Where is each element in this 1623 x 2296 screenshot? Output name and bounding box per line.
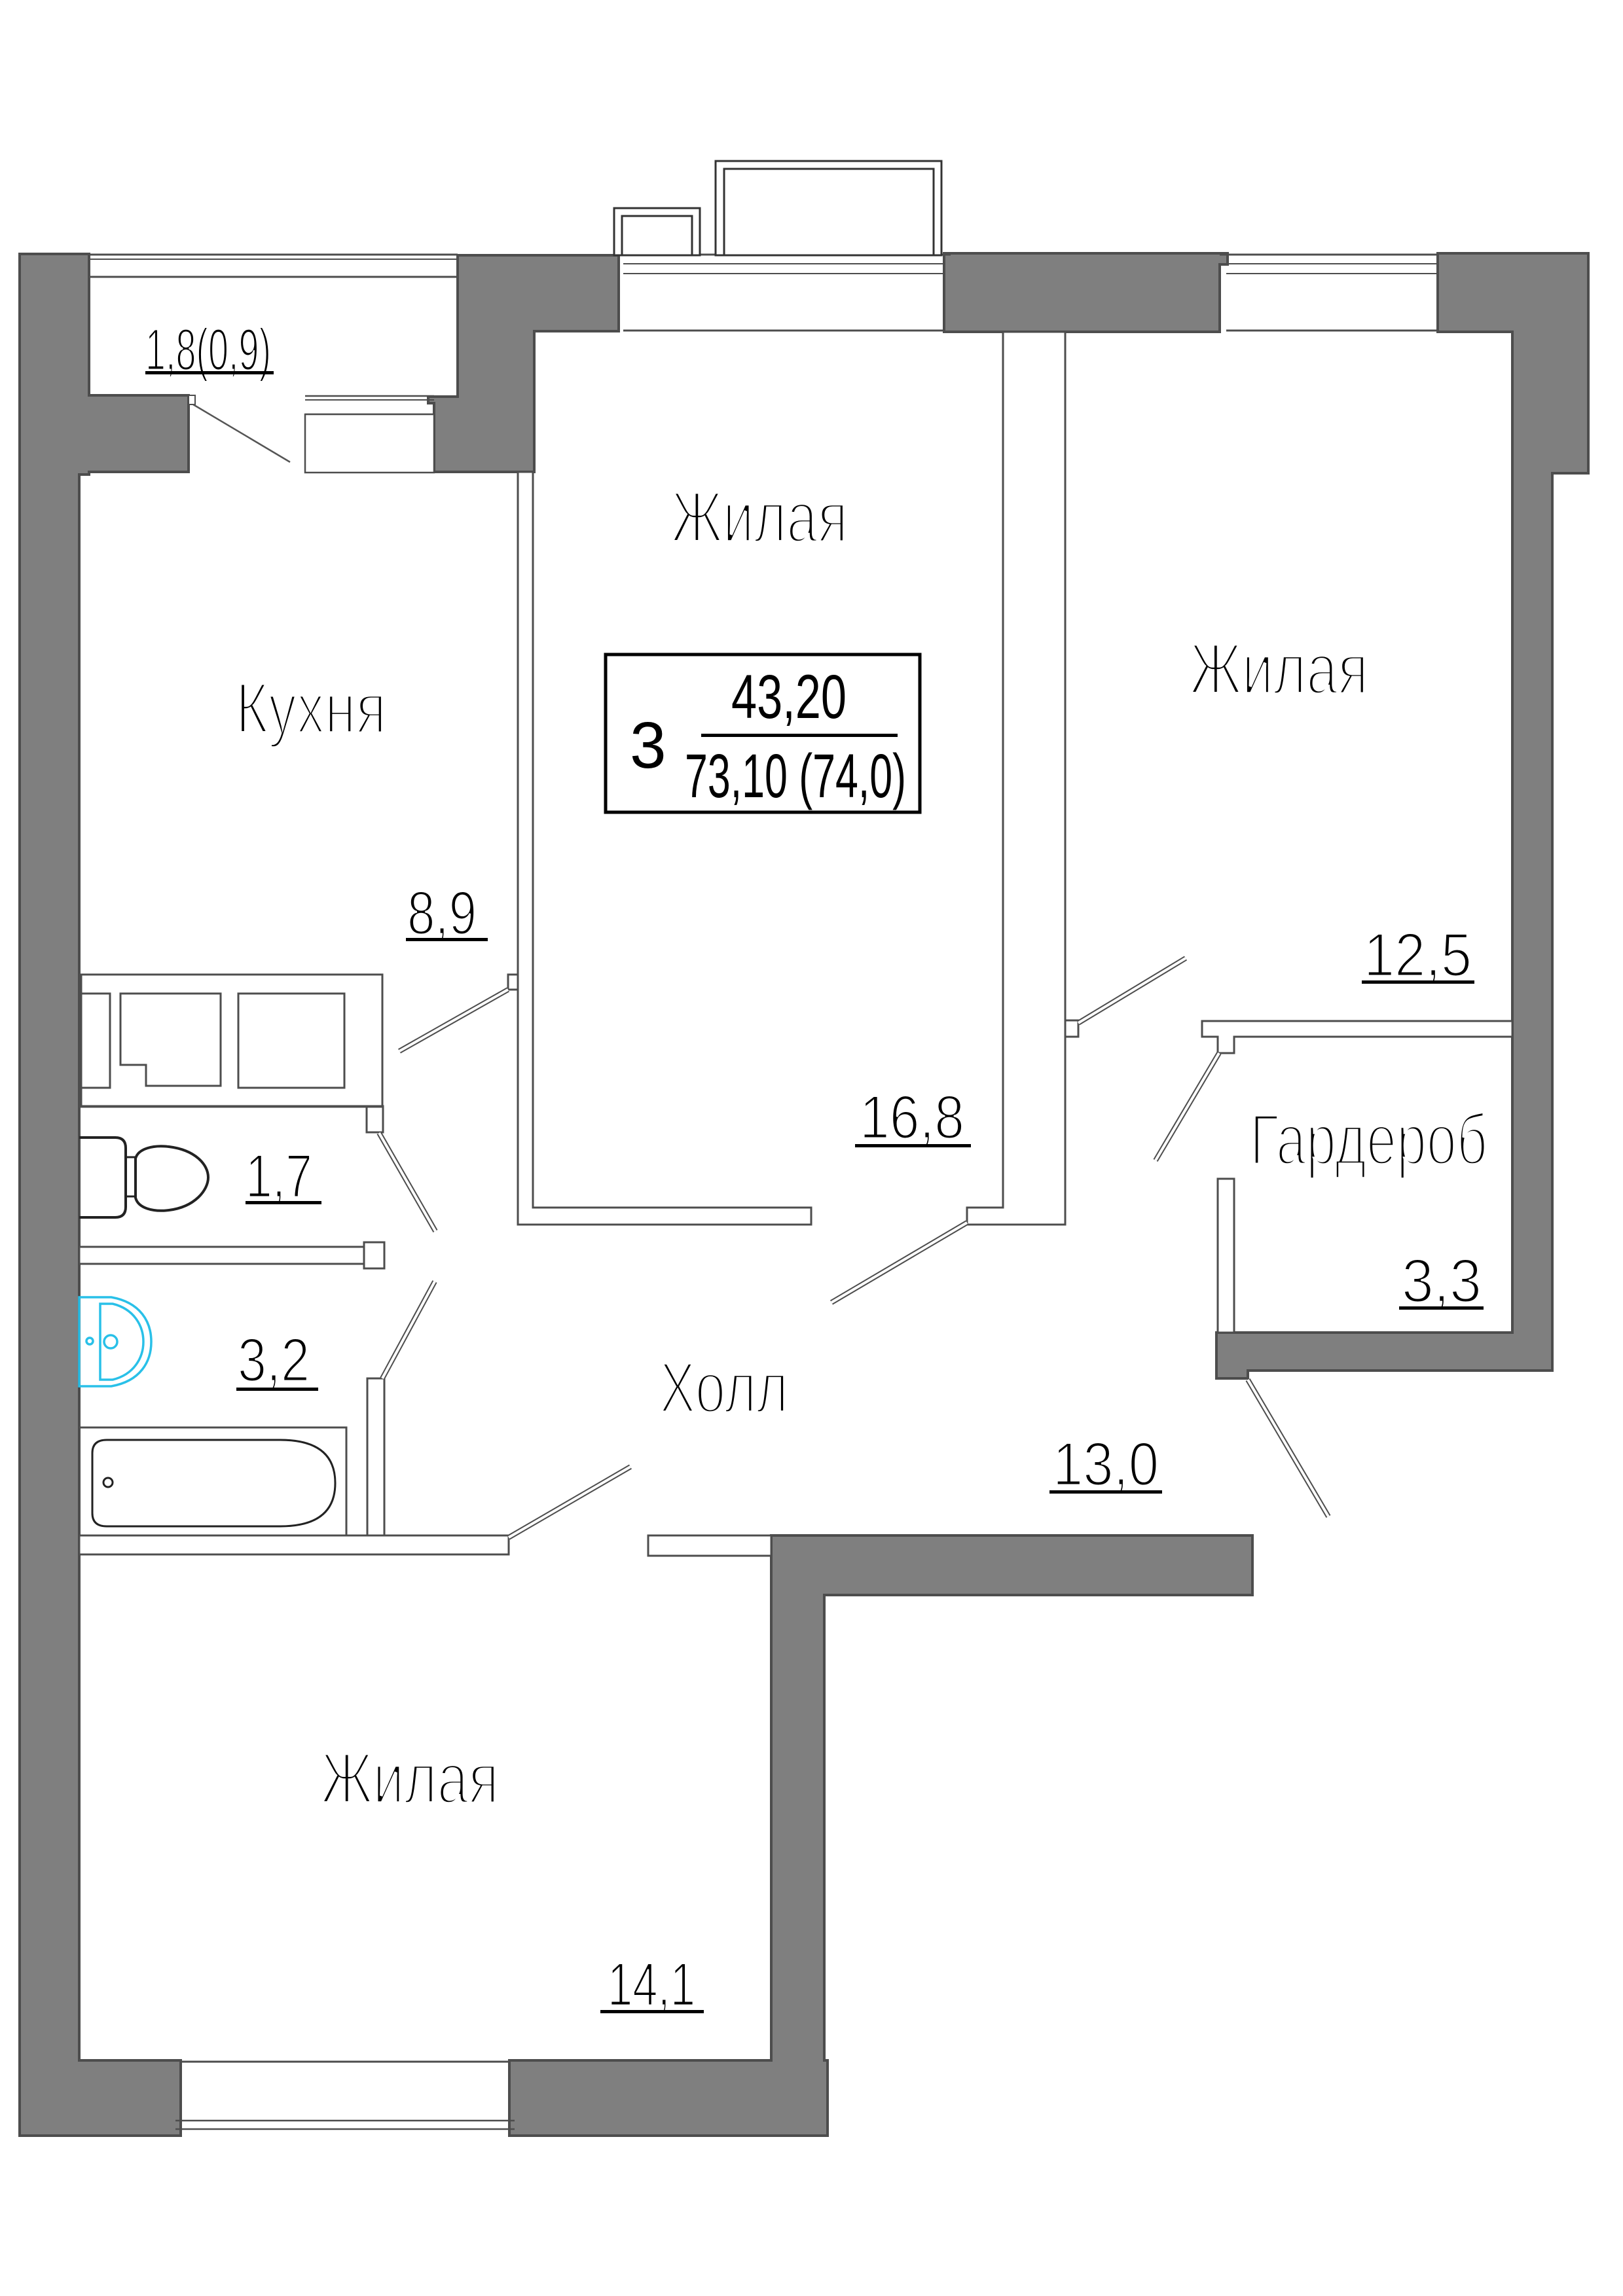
svg-text:Холл: Холл bbox=[659, 1348, 788, 1428]
svg-text:43,20: 43,20 bbox=[731, 662, 847, 732]
svg-text:Жилая: Жилая bbox=[1190, 629, 1368, 709]
svg-text:Жилая: Жилая bbox=[321, 1738, 499, 1819]
svg-text:Жилая: Жилая bbox=[671, 477, 848, 558]
svg-text:73,10 (74,0): 73,10 (74,0) bbox=[685, 742, 906, 811]
svg-text:16,8: 16,8 bbox=[860, 1083, 964, 1151]
svg-text:3: 3 bbox=[630, 709, 666, 782]
svg-text:12,5: 12,5 bbox=[1364, 920, 1472, 989]
svg-text:Гардероб: Гардероб bbox=[1250, 1100, 1487, 1180]
svg-text:1,7: 1,7 bbox=[246, 1141, 312, 1210]
svg-text:14,1: 14,1 bbox=[608, 1950, 695, 2018]
svg-text:3,2: 3,2 bbox=[238, 1325, 310, 1394]
svg-text:8,9: 8,9 bbox=[407, 878, 477, 947]
svg-text:3,3: 3,3 bbox=[1402, 1246, 1482, 1315]
svg-text:13,0: 13,0 bbox=[1053, 1429, 1159, 1498]
svg-text:Кухня: Кухня bbox=[236, 668, 386, 749]
